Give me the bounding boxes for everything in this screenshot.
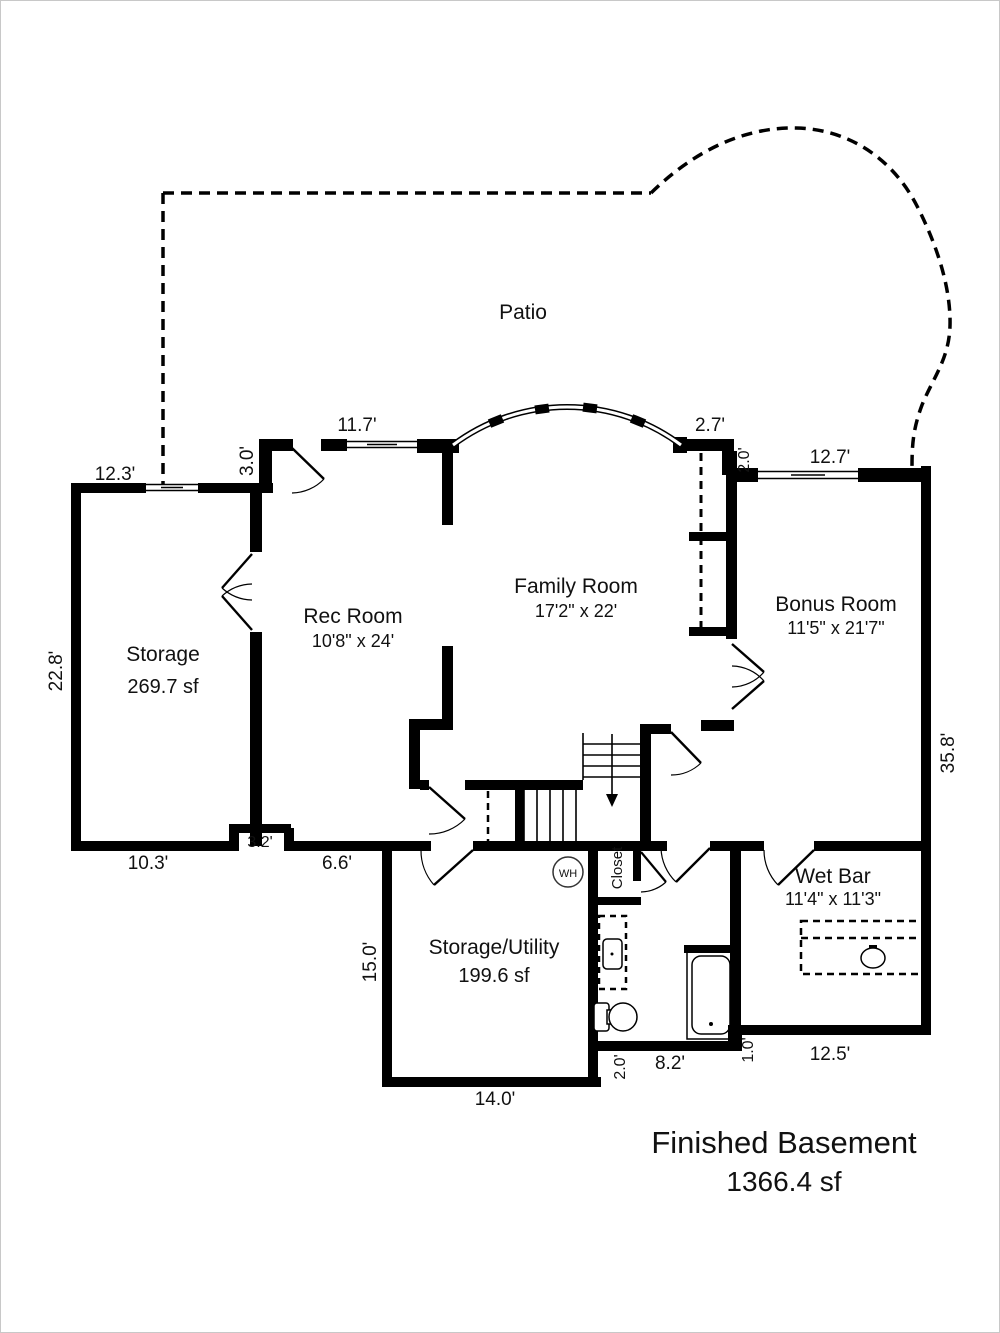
wall-stair-left bbox=[515, 789, 524, 846]
wall-stair-top-b bbox=[465, 780, 583, 790]
bathtub bbox=[687, 951, 735, 1039]
door-storage-utility bbox=[421, 850, 473, 885]
wall-rec-top-a bbox=[259, 439, 293, 451]
door-storage-double bbox=[222, 554, 252, 630]
dim-utility-bottom: 14.0' bbox=[475, 1089, 516, 1110]
dim-rec-step: 3.0' bbox=[237, 446, 258, 476]
wall-exterior-left bbox=[71, 483, 81, 851]
patio-label: Patio bbox=[499, 301, 547, 324]
wet-bar-size: 11'4" x 11'3" bbox=[785, 889, 881, 909]
door-rec-patio bbox=[292, 448, 324, 493]
dim-storage-bottom: 10.3' bbox=[128, 853, 169, 874]
door-bonus-double bbox=[732, 644, 764, 709]
dim-bath-step: 2.0' bbox=[612, 1054, 629, 1079]
wall-tub-top bbox=[684, 945, 738, 953]
wall-bonus-stub-2 bbox=[689, 627, 727, 636]
door-stair-hall bbox=[429, 787, 465, 834]
family-room-size: 17'2" x 22' bbox=[535, 601, 617, 621]
wall-storage-bottom bbox=[71, 841, 236, 851]
floor-plan-drawing: Patio Storage 269.7 sf Rec Room 10'8" x … bbox=[1, 1, 1000, 1333]
dim-storage-left: 22.8' bbox=[46, 651, 67, 692]
wall-bonus-stub-1 bbox=[689, 532, 727, 541]
bay-window bbox=[453, 403, 681, 445]
rec-room-label: Rec Room bbox=[303, 605, 402, 628]
wall-closet-east bbox=[633, 846, 641, 881]
dimension-labels: 12.3' 3.0' 11.7' 2.7' 2.0' 12.7' 22.8' 3… bbox=[46, 415, 959, 1110]
wet-bar-label: Wet Bar bbox=[795, 865, 870, 888]
wall-utility-bottom bbox=[382, 1077, 601, 1087]
dim-storage-top: 12.3' bbox=[95, 464, 136, 485]
bonus-room-window bbox=[758, 472, 858, 479]
closet-label: Closet bbox=[609, 846, 626, 889]
rec-room-size: 10'8" x 24' bbox=[312, 631, 394, 651]
wall-rec-top-b bbox=[321, 439, 347, 451]
wall-utility-west bbox=[382, 841, 392, 1087]
wall-rec-family-lower bbox=[442, 646, 453, 729]
storage-window bbox=[146, 485, 198, 491]
rec-room-window bbox=[347, 442, 417, 448]
plan-title: Finished Basement bbox=[651, 1125, 917, 1160]
wall-hall-bottom bbox=[284, 841, 391, 851]
wetbar-counter bbox=[801, 921, 929, 974]
floor-plan-page: Patio Storage 269.7 sf Rec Room 10'8" x … bbox=[0, 0, 1000, 1333]
dim-notch: 3.2' bbox=[247, 834, 272, 851]
bonus-room-size: 11'5" x 21'7" bbox=[787, 618, 884, 638]
wall-stair-east bbox=[640, 724, 651, 846]
water-heater-label: WH bbox=[559, 868, 577, 880]
dim-tub-step: 1.0' bbox=[740, 1037, 757, 1062]
wall-closet-bottom bbox=[588, 897, 641, 905]
plan-total-area: 1366.4 sf bbox=[726, 1166, 841, 1197]
wall-bonus-west bbox=[726, 451, 737, 639]
door-hallway bbox=[671, 732, 701, 775]
family-room-label: Family Room bbox=[514, 575, 638, 598]
wall-storage-rec-lower bbox=[250, 632, 262, 846]
dim-bonus-window: 12.7' bbox=[810, 447, 851, 468]
dim-bonus-step: 2.0' bbox=[736, 447, 753, 472]
stair-down-arrow bbox=[606, 734, 618, 807]
wall-bonus-top-right bbox=[858, 468, 931, 482]
wall-bath-bottom bbox=[588, 1041, 738, 1051]
wall-wetbar-bottom bbox=[734, 1025, 931, 1035]
bay-post-2 bbox=[534, 404, 549, 415]
wall-storage-rec-upper bbox=[250, 488, 262, 552]
storage-utility-size: 199.6 sf bbox=[458, 965, 530, 987]
bay-post-3 bbox=[583, 403, 598, 414]
wall-south-a bbox=[391, 841, 431, 851]
storage-size: 269.7 sf bbox=[127, 676, 199, 698]
wall-hall-stub-b bbox=[701, 720, 734, 731]
dim-wetbar-bottom: 12.5' bbox=[810, 1044, 851, 1065]
labels: Patio Storage 269.7 sf Rec Room 10'8" x … bbox=[126, 301, 917, 1197]
dim-hall-bottom: 6.6' bbox=[322, 853, 352, 874]
wall-rec-jog-v bbox=[409, 719, 420, 789]
walls bbox=[71, 437, 931, 1087]
dim-bath-bottom: 8.2' bbox=[655, 1053, 685, 1074]
patio-boundary bbox=[163, 128, 950, 485]
stair-lower-treads bbox=[524, 789, 576, 841]
storage-utility-label: Storage/Utility bbox=[429, 936, 560, 959]
wall-south-d bbox=[814, 841, 931, 851]
dim-right-side: 35.8' bbox=[938, 733, 959, 774]
dim-utility-left: 15.0' bbox=[360, 942, 381, 983]
wall-stair-top-a bbox=[420, 780, 429, 790]
wall-rec-family-upper bbox=[442, 445, 453, 525]
wall-hall-stub-a bbox=[640, 724, 671, 734]
toilet bbox=[594, 1003, 637, 1031]
storage-label: Storage bbox=[126, 643, 200, 666]
door-bathroom bbox=[661, 848, 710, 882]
bonus-room-label: Bonus Room bbox=[775, 593, 896, 616]
bath-vanity bbox=[599, 916, 626, 989]
dim-family-step: 2.7' bbox=[695, 415, 725, 436]
wall-family-step bbox=[679, 439, 729, 451]
dim-rec-window: 11.7' bbox=[337, 415, 376, 436]
